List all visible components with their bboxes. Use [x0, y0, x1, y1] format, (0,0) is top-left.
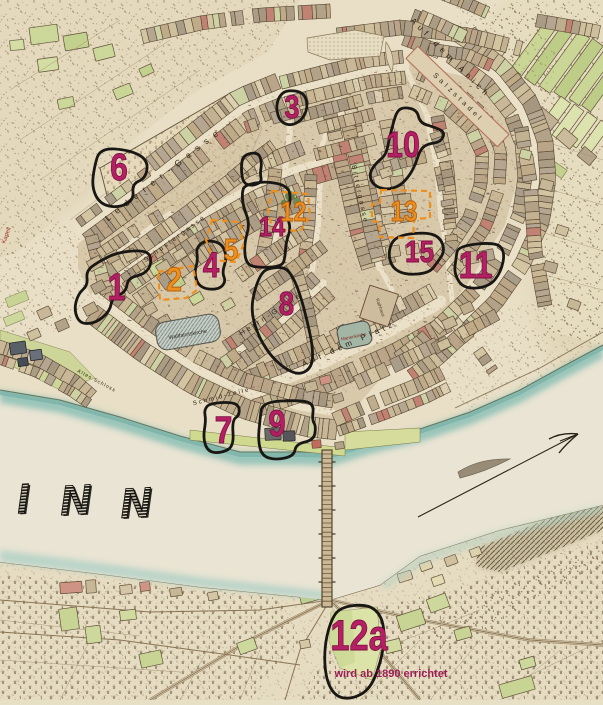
svg-text:13: 13 [390, 195, 417, 227]
svg-text:4: 4 [203, 246, 219, 285]
svg-text:6: 6 [110, 146, 128, 188]
svg-text:8: 8 [279, 286, 294, 323]
svg-text:10: 10 [386, 126, 420, 166]
svg-text:12: 12 [280, 197, 306, 227]
svg-text:7: 7 [215, 409, 233, 451]
svg-text:1: 1 [108, 266, 126, 308]
svg-text:N: N [119, 478, 153, 527]
svg-text:12a: 12a [330, 612, 388, 659]
svg-text:11: 11 [459, 244, 493, 286]
svg-text:wird ab 1890 errichtet: wird ab 1890 errichtet [333, 668, 447, 680]
svg-text:9: 9 [268, 404, 285, 445]
svg-text:5: 5 [224, 233, 239, 268]
svg-text:15: 15 [405, 235, 434, 270]
svg-text:N: N [59, 475, 93, 524]
svg-text:2: 2 [166, 261, 182, 299]
svg-text:3: 3 [285, 90, 300, 126]
